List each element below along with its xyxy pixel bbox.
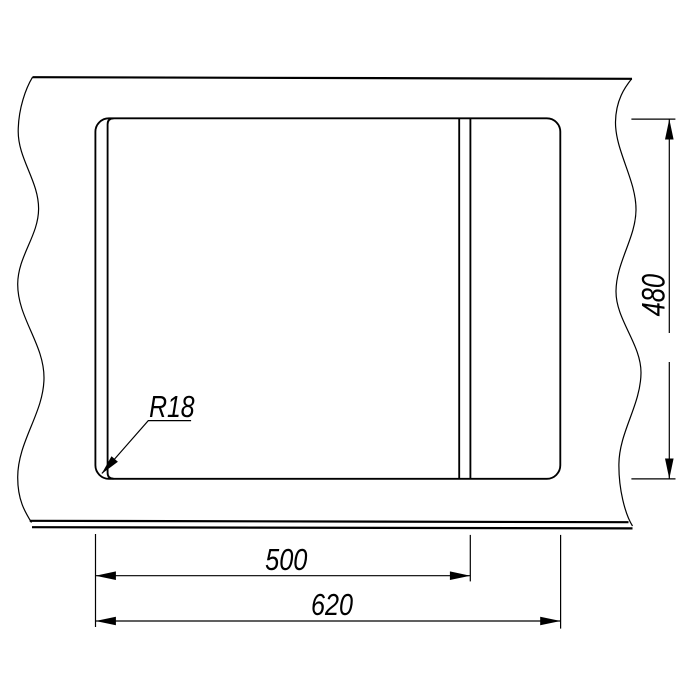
svg-text:500: 500 [265,542,307,577]
svg-text:620: 620 [311,587,353,622]
svg-text:480: 480 [636,274,672,317]
svg-text:R18: R18 [149,389,195,424]
